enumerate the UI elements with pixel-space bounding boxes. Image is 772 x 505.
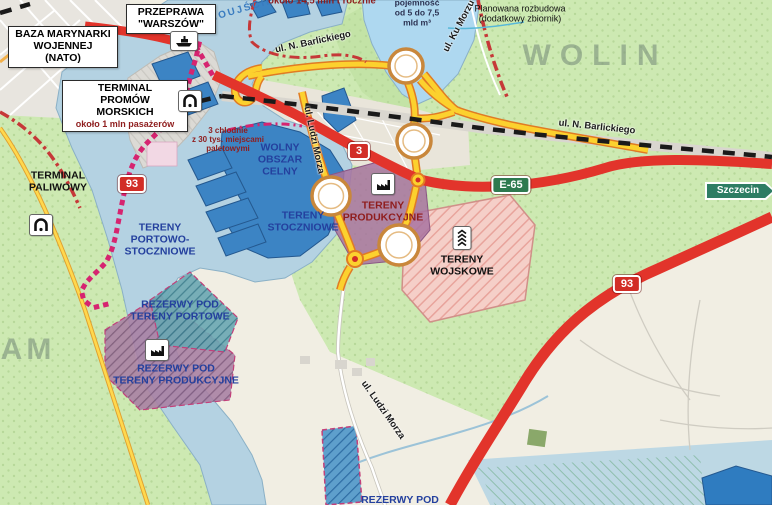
infobox-ferry-terminal: TERMINAL PROMÓW MORSKICH około 1 mln pas… bbox=[62, 80, 188, 132]
roundabout-2 bbox=[397, 124, 431, 158]
roundabout-4 bbox=[379, 225, 419, 265]
direction-sign-szczecin: Szczecin bbox=[705, 182, 772, 200]
infobox-line: MORSKICH bbox=[69, 107, 181, 119]
infobox-subtitle: około 1 mln pasażerów bbox=[69, 119, 181, 129]
military-rank-icon bbox=[453, 226, 472, 250]
area-label-reserve-bottom: REZERWY POD bbox=[361, 495, 439, 505]
map-canvas: WOLIN AM ŚWINOUJŚCIE BAZA MARYNARKI WOJE… bbox=[0, 0, 772, 505]
note-tonnage: około 14,5 mln t rocznie bbox=[268, 0, 376, 7]
area-line: REZERWY POD bbox=[361, 495, 439, 505]
infobox-line: "WARSZÓW" bbox=[133, 19, 209, 31]
factory-icon bbox=[371, 173, 395, 195]
area-line: OBSZAR bbox=[258, 154, 302, 166]
area-line: STOCZNIOWE bbox=[268, 222, 339, 234]
area-line: TERENY PRODUKCYJNE bbox=[113, 375, 239, 387]
note-line: paletowymi bbox=[192, 145, 264, 154]
area-label-customs: WOLNY OBSZAR CELNY bbox=[258, 142, 302, 177]
map-artwork bbox=[0, 0, 772, 505]
sign-text: Szczecin bbox=[707, 184, 772, 198]
area-line: STOCZNIOWE bbox=[125, 246, 196, 258]
note-line: (dodatkowy zbiornik) bbox=[474, 14, 565, 24]
area-line: PALIWOWY bbox=[29, 182, 87, 194]
area-label-production: TERENY PRODUKCYJNE bbox=[343, 200, 424, 224]
area-line: TERENY bbox=[268, 210, 339, 222]
note-capacity: pojemność od 5 do 7,5 mld m³ bbox=[395, 0, 440, 28]
factory-icon bbox=[145, 339, 169, 361]
area-label-prod-reserve: REZERWY POD TERENY PRODUKCYJNE bbox=[113, 363, 239, 387]
junction-cross bbox=[412, 174, 425, 187]
area-line: TERMINAL bbox=[29, 170, 87, 182]
note-cold-stores: 3 chłodnie z 30 tys. miejscami paletowym… bbox=[192, 126, 264, 154]
area-label-port-reserve: REZERWY POD TERENY PORTOWE bbox=[130, 299, 229, 323]
note-expansion: Planowana rozbudowa (dodatkowy zbiornik) bbox=[474, 4, 565, 25]
route-shield-93-east: 93 bbox=[613, 275, 641, 293]
tunnel-icon bbox=[29, 214, 53, 236]
ferry-icon bbox=[170, 31, 198, 51]
place-label-uznam: AM bbox=[1, 333, 56, 367]
route-shield-e65: E-65 bbox=[491, 176, 530, 194]
area-line: TERENY bbox=[343, 200, 424, 212]
area-label-port-shipyard: TERENY PORTOWO- STOCZNIOWE bbox=[125, 222, 196, 257]
note-line: mld m³ bbox=[395, 18, 440, 28]
note-line: z 30 tys. miejscami bbox=[192, 135, 264, 144]
area-line: PORTOWO- bbox=[125, 234, 196, 246]
area-line: CELNY bbox=[258, 166, 302, 178]
area-line: TERENY PORTOWE bbox=[130, 311, 229, 323]
area-line: WOLNY bbox=[258, 142, 302, 154]
area-line: PRODUKCYJNE bbox=[343, 212, 424, 224]
infobox-crossing: PRZEPRAWA "WARSZÓW" bbox=[126, 4, 216, 34]
infobox-line: (NATO) bbox=[15, 53, 111, 65]
area-line: REZERWY POD bbox=[130, 299, 229, 311]
tunnel-icon bbox=[178, 90, 202, 112]
note-line: 3 chłodnie bbox=[192, 126, 264, 135]
sign-border: Szczecin bbox=[705, 182, 772, 200]
area-line: REZERWY POD bbox=[113, 363, 239, 375]
note-line: Planowana rozbudowa bbox=[474, 4, 565, 14]
area-line: TERENY bbox=[430, 254, 494, 266]
small-zone bbox=[147, 142, 177, 166]
area-line: WOJSKOWE bbox=[430, 266, 494, 278]
place-label-wolin: WOLIN bbox=[523, 39, 668, 73]
junction-small bbox=[347, 251, 363, 267]
area-label-fuel-terminal: TERMINAL PALIWOWY bbox=[29, 170, 87, 194]
roundabout-1 bbox=[389, 49, 423, 83]
green-patch bbox=[527, 429, 547, 447]
area-label-shipyard: TERENY STOCZNIOWE bbox=[268, 210, 339, 234]
route-shield-3: 3 bbox=[348, 142, 370, 160]
zone-bottom-reserve bbox=[322, 426, 362, 505]
infobox-naval-base: BAZA MARYNARKI WOJENNEJ (NATO) bbox=[8, 26, 118, 68]
area-line: TERENY bbox=[125, 222, 196, 234]
route-shield-93-west: 93 bbox=[118, 175, 146, 193]
area-label-military: TERENY WOJSKOWE bbox=[430, 254, 494, 278]
